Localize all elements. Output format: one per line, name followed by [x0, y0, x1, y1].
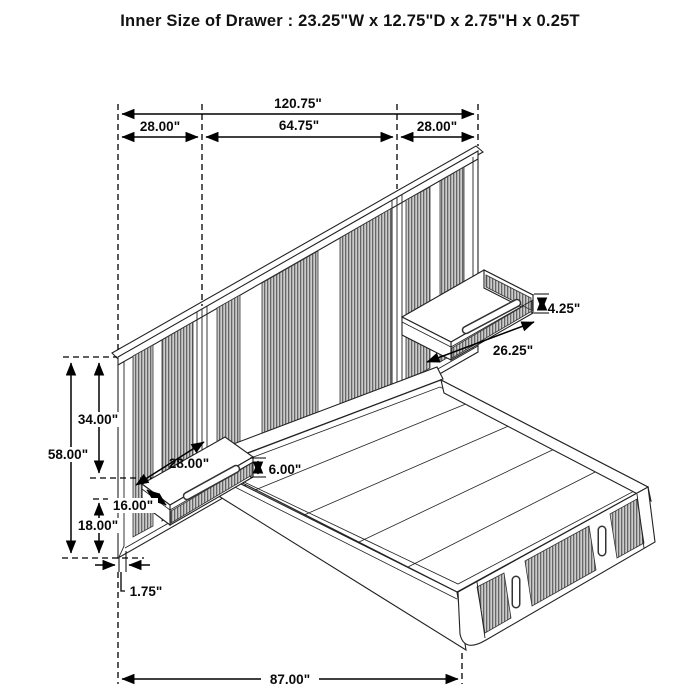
dim-right-nightstand-width: 26.25" [493, 343, 533, 358]
dim-thickness: 1.75" [130, 584, 163, 599]
dim-right-nightstand-height: 4.25" [548, 301, 581, 316]
dim-left-section: 28.00" [140, 119, 180, 134]
dim-left-nightstand-height: 6.00" [269, 462, 302, 477]
dim-top-to-nightstand: 34.00" [78, 412, 118, 427]
leader-line-thickness [121, 572, 125, 591]
dim-headboard-height: 58.00" [48, 447, 88, 462]
dim-right-section: 28.00" [417, 119, 457, 134]
drawing-title: Inner Size of Drawer : 23.25"W x 12.75"D… [0, 12, 700, 31]
dim-left-nightstand-width: 28.00" [169, 456, 209, 471]
drawing-page: Inner Size of Drawer : 23.25"W x 12.75"D… [0, 0, 700, 700]
dim-bottom-to-floor: 18.00" [78, 518, 118, 533]
bed-dimension-diagram: 120.75" 28.00" 64.75" 28.00" 58.00" 34.0… [0, 0, 700, 700]
dim-center-section: 64.75" [279, 118, 319, 133]
dim-total-width: 120.75" [274, 96, 322, 111]
dim-nightstand-depth: 16.00" [113, 498, 153, 513]
dim-bed-length: 87.00" [270, 672, 310, 687]
